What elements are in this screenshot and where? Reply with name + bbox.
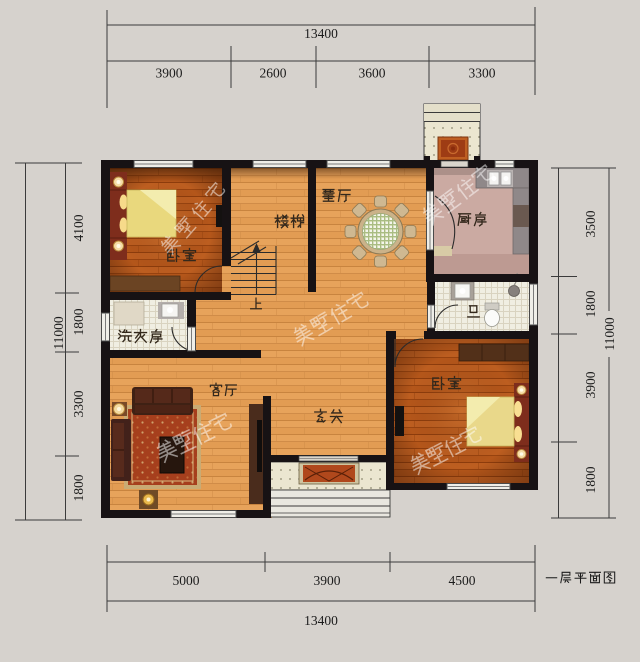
svg-text:3600: 3600 — [359, 66, 386, 81]
svg-text:3900: 3900 — [583, 371, 598, 398]
svg-text:1800: 1800 — [71, 474, 86, 501]
svg-text:13400: 13400 — [304, 613, 338, 628]
svg-text:4100: 4100 — [71, 214, 86, 241]
svg-text:3900: 3900 — [156, 66, 183, 81]
svg-text:1800: 1800 — [71, 308, 86, 335]
svg-text:3900: 3900 — [314, 573, 341, 588]
svg-text:11000: 11000 — [602, 317, 617, 350]
svg-text:2600: 2600 — [260, 66, 287, 81]
svg-text:13400: 13400 — [304, 26, 338, 41]
svg-text:3300: 3300 — [469, 66, 496, 81]
svg-text:3500: 3500 — [583, 210, 598, 237]
svg-text:5000: 5000 — [173, 573, 200, 588]
svg-text:11000: 11000 — [51, 316, 66, 349]
svg-text:1800: 1800 — [583, 290, 598, 317]
svg-text:1800: 1800 — [583, 466, 598, 493]
svg-text:3300: 3300 — [71, 390, 86, 417]
svg-text:4500: 4500 — [449, 573, 476, 588]
